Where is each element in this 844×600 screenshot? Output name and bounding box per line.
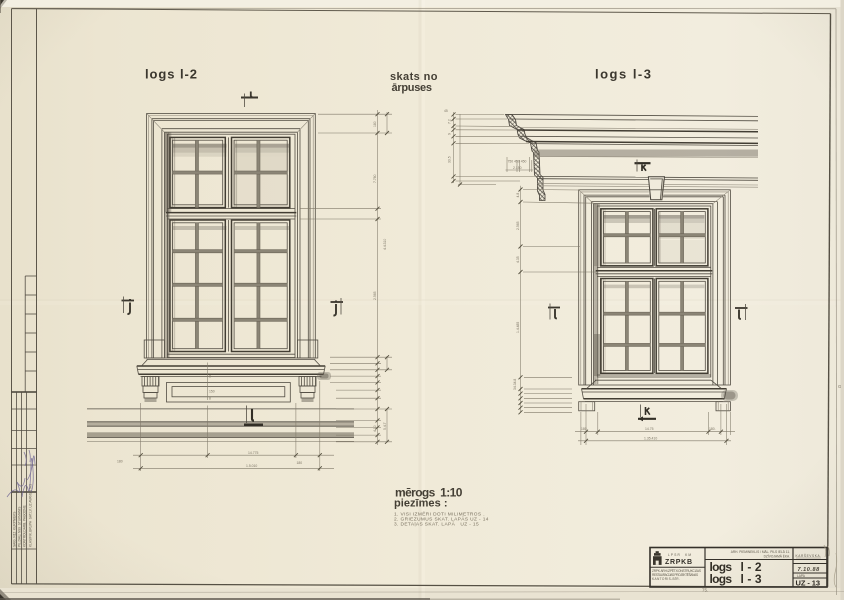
svg-text:PIL.DAU. N99 STUKMANIS: PIL.DAU. N99 STUKMANIS [18, 507, 22, 547]
svg-text:7.780: 7.780 [373, 174, 377, 183]
svg-text:180: 180 [117, 460, 123, 464]
svg-text:1.4.485: 1.4.485 [516, 322, 520, 333]
svg-text:7.2: 7.2 [448, 119, 452, 124]
svg-text:logs l-2: logs l-2 [145, 67, 198, 82]
svg-text:180: 180 [297, 461, 303, 465]
svg-text:33.5: 33.5 [448, 156, 452, 163]
svg-text:14.775: 14.775 [248, 451, 258, 455]
svg-text:piezīmes :: piezīmes : [394, 498, 448, 510]
svg-text:750 450 450: 750 450 450 [508, 160, 527, 164]
svg-text:2.565: 2.565 [516, 221, 520, 230]
svg-text:1.35.410: 1.35.410 [644, 436, 657, 440]
svg-text:logs: logs [710, 572, 733, 586]
svg-text:180: 180 [373, 121, 377, 127]
svg-text:75.: 75. [702, 588, 708, 593]
svg-text:2.150: 2.150 [513, 166, 522, 170]
svg-text:2.565: 2.565 [373, 291, 377, 300]
svg-text:ārpuses: ārpuses [392, 82, 433, 94]
svg-text:ARH. PIEMINEKLIS / MĀL. PILS I: ARH. PIEMINEKLIS / MĀL. PILS IELĀ 11. [731, 550, 790, 554]
svg-text:ZRPK ARH.IZPĒT.KONSTRUKCIJAS: ZRPK ARH.IZPĒT.KONSTRUKCIJAS [652, 569, 701, 573]
svg-text:7.10.88: 7.10.88 [798, 567, 821, 573]
svg-text:1.5.010: 1.5.010 [246, 464, 257, 468]
svg-text:UZ - 13: UZ - 13 [796, 578, 821, 587]
svg-text:KANTORIS-BĪR.: KANTORIS-BĪR. [652, 577, 680, 581]
svg-text:4.8: 4.8 [516, 193, 520, 198]
svg-text:45: 45 [444, 109, 448, 113]
svg-text:8: 8 [209, 375, 211, 379]
svg-text:14.75: 14.75 [645, 427, 654, 431]
svg-text:G: G [838, 384, 841, 389]
svg-text:34.34.8: 34.34.8 [513, 379, 517, 390]
svg-text:KONTROLDARB. PAGODNE: KONTROLDARB. PAGODNE [22, 505, 26, 547]
svg-text:5.4.7: 5.4.7 [383, 422, 387, 430]
svg-text:180.: 180. [709, 427, 716, 431]
svg-text:SAIG. N12 KURPNIEKS: SAIG. N12 KURPNIEKS [13, 512, 17, 547]
svg-text:4.35: 4.35 [516, 256, 520, 263]
svg-text:4.10: 4.10 [373, 425, 377, 432]
svg-text:DZĪVOJAMĀ ĒKA.: DZĪVOJAMĀ ĒKA. [764, 555, 791, 559]
svg-text:9: 9 [448, 133, 452, 135]
svg-text:180: 180 [581, 427, 587, 431]
svg-text:150: 150 [209, 390, 215, 394]
svg-text:l - 3: l - 3 [741, 572, 762, 586]
svg-text:ZRPKB: ZRPKB [665, 559, 693, 566]
svg-text:logs l-3: logs l-3 [595, 67, 652, 82]
svg-text:KLASIFIK.GRUPA SAT.LV. UZ AVA: KLASIFIK.GRUPA SAT.LV. UZ AVANSOTAS [28, 484, 32, 547]
svg-text:RESTAURACIJAS PROJEKTĒŠANAS: RESTAURACIJAS PROJEKTĒŠANAS [652, 572, 698, 577]
svg-text:8: 8 [209, 397, 211, 401]
svg-text:KARŠEVSKA.: KARŠEVSKA. [796, 553, 822, 558]
svg-text:4.4.310: 4.4.310 [383, 239, 387, 250]
